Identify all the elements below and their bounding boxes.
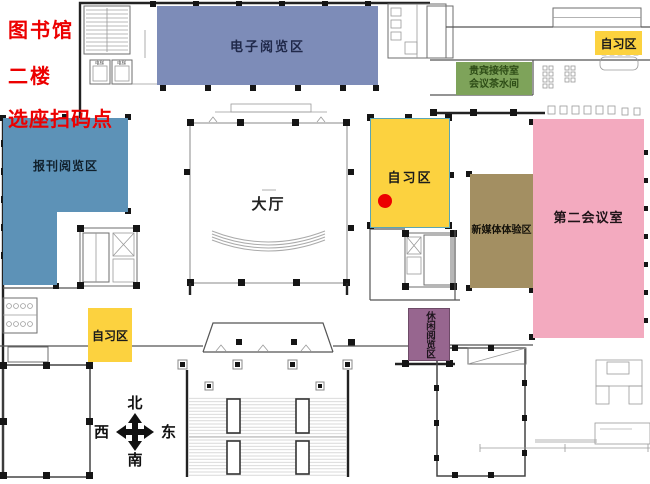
- zone-hall: 大厅: [190, 123, 347, 283]
- zone-label-line1: 贵宾接待室: [469, 66, 519, 79]
- restrooms-bottom-left: [3, 298, 37, 333]
- legend: 图书馆 二楼 选座扫码点: [8, 14, 113, 132]
- legend-title: 图书馆: [8, 14, 113, 43]
- zone-label: 休闲阅览区: [422, 311, 436, 359]
- compass: 北 西 东 南: [92, 396, 178, 478]
- chair-row-above-meeting: [548, 106, 640, 115]
- zone-label: 新媒体体验区: [472, 221, 532, 236]
- compass-north-label: 北: [127, 396, 142, 411]
- legend-marker-row: 选座扫码点: [8, 103, 113, 132]
- floorplan-page: 电梯 电梯: [0, 0, 650, 484]
- stairwell-top-right: [446, 8, 650, 27]
- reading-tables: [543, 66, 575, 88]
- restrooms-top: [388, 4, 446, 58]
- zone-new-media: 新媒体体验区: [470, 174, 533, 288]
- stairwell-left-mid: [77, 225, 140, 289]
- zone-leisure-reading: 休闲阅览区: [408, 308, 450, 361]
- zone-label: 电子阅览区: [230, 36, 305, 55]
- zone-newspaper-reading-ext: [3, 212, 57, 285]
- zone-label: 第二会议室: [553, 207, 623, 226]
- legend-floor: 二楼: [8, 60, 113, 89]
- zone-second-meeting-room: 第二会议室: [533, 119, 644, 338]
- seat-scan-point-marker[interactable]: [378, 194, 392, 208]
- compass-east-label: 东: [161, 425, 176, 440]
- zone-label: 自习区: [387, 167, 432, 186]
- compass-south-label: 南: [127, 453, 142, 468]
- compass-west-label: 西: [94, 425, 109, 440]
- zone-newspaper-reading: 报刊阅览区: [3, 118, 128, 212]
- zone-label: 自习区: [92, 327, 128, 344]
- stage-structure: [480, 360, 650, 452]
- compass-cross-icon: [114, 411, 156, 453]
- svg-text:电梯: 电梯: [117, 60, 126, 67]
- zone-study-top-right: 自习区: [595, 31, 642, 55]
- stairwell-center-right: [370, 218, 460, 300]
- zone-study-bottom-left: 自习区: [88, 308, 132, 362]
- room-bottom-left: [0, 362, 93, 479]
- legend-marker-label: 选座扫码点: [8, 107, 113, 131]
- zone-label: 报刊阅览区: [33, 157, 98, 174]
- zone-study-center: 自习区: [370, 118, 450, 228]
- zone-label: 大厅: [251, 193, 285, 214]
- zone-vip-reception: 贵宾接待室 会议茶水间: [456, 62, 532, 95]
- grand-staircase: [178, 360, 352, 477]
- zone-label-line2: 会议茶水间: [469, 79, 519, 92]
- zone-electronic-reading: 电子阅览区: [157, 6, 378, 85]
- zone-label: 自习区: [600, 35, 636, 52]
- entrance-vestibule: [203, 323, 408, 352]
- leisure-walls: [395, 360, 455, 367]
- stairwell-top-mid: [427, 6, 453, 58]
